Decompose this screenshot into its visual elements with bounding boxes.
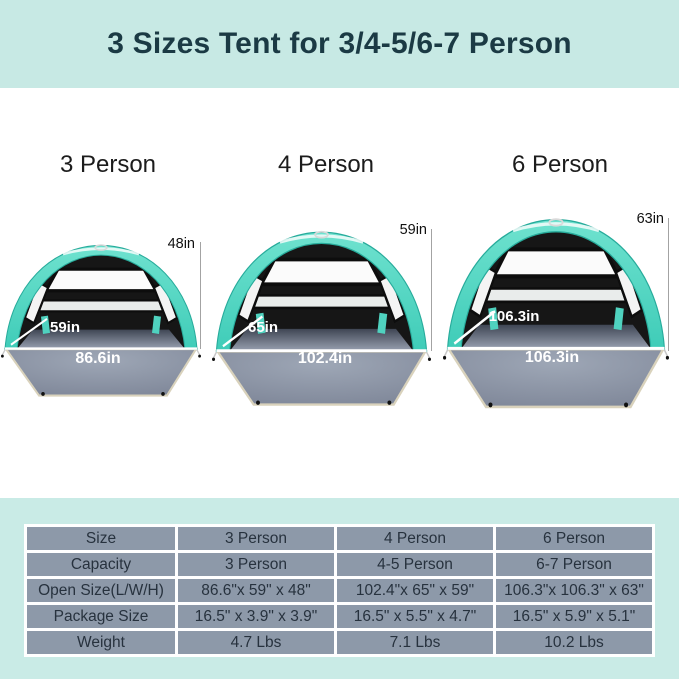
spec-panel: Size 3 Person 4 Person 6 Person Capacity… xyxy=(0,498,679,679)
tent-2-name: 4 Person xyxy=(246,151,406,179)
height-label-4-person: 59in xyxy=(389,222,427,238)
width-label-3-person: 86.6in xyxy=(43,350,153,368)
depth-label-3-person: 59in xyxy=(10,319,120,336)
height-label-6-person: 63in xyxy=(626,211,664,227)
spec-row-label: Capacity xyxy=(27,553,175,576)
spec-cell: 7.1 Lbs xyxy=(337,631,493,654)
spec-cell: 3 Person xyxy=(178,527,334,550)
width-label-6-person: 106.3in xyxy=(497,349,607,367)
spec-cell: 4-5 Person xyxy=(337,553,493,576)
spec-cell: 6-7 Person xyxy=(496,553,652,576)
height-line-6-person xyxy=(668,218,669,351)
spec-row-label: Weight xyxy=(27,631,175,654)
spec-cell: 106.3"x 106.3" x 63" xyxy=(496,579,652,602)
tent-1-name: 3 Person xyxy=(28,151,188,179)
tent-3-name: 6 Person xyxy=(480,151,640,179)
page-title: 3 Sizes Tent for 3/4-5/6-7 Person xyxy=(107,27,572,61)
spec-cell: 102.4"x 65" x 59" xyxy=(337,579,493,602)
spec-cell: 16.5" x 5.9" x 5.1" xyxy=(496,605,652,628)
height-label-3-person: 48in xyxy=(157,236,195,252)
spec-cell: 4 Person xyxy=(337,527,493,550)
spec-cell: 86.6"x 59" x 48" xyxy=(178,579,334,602)
spec-cell: 6 Person xyxy=(496,527,652,550)
height-line-4-person xyxy=(431,229,432,351)
spec-cell: 16.5" x 3.9" x 3.9" xyxy=(178,605,334,628)
spec-cell: 3 Person xyxy=(178,553,334,576)
width-label-4-person: 102.4in xyxy=(270,350,380,368)
spec-cell: 16.5" x 5.5" x 4.7" xyxy=(337,605,493,628)
depth-label-4-person: 65in xyxy=(208,319,318,336)
height-line-3-person xyxy=(200,242,201,349)
spec-row-label: Package Size xyxy=(27,605,175,628)
header-banner: 3 Sizes Tent for 3/4-5/6-7 Person xyxy=(0,0,679,88)
spec-row-label: Size xyxy=(27,527,175,550)
spec-table: Size 3 Person 4 Person 6 Person Capacity… xyxy=(24,524,655,657)
spec-cell: 10.2 Lbs xyxy=(496,631,652,654)
spec-cell: 4.7 Lbs xyxy=(178,631,334,654)
spec-row-label: Open Size(L/W/H) xyxy=(27,579,175,602)
depth-label-6-person: 106.3in xyxy=(459,308,569,325)
